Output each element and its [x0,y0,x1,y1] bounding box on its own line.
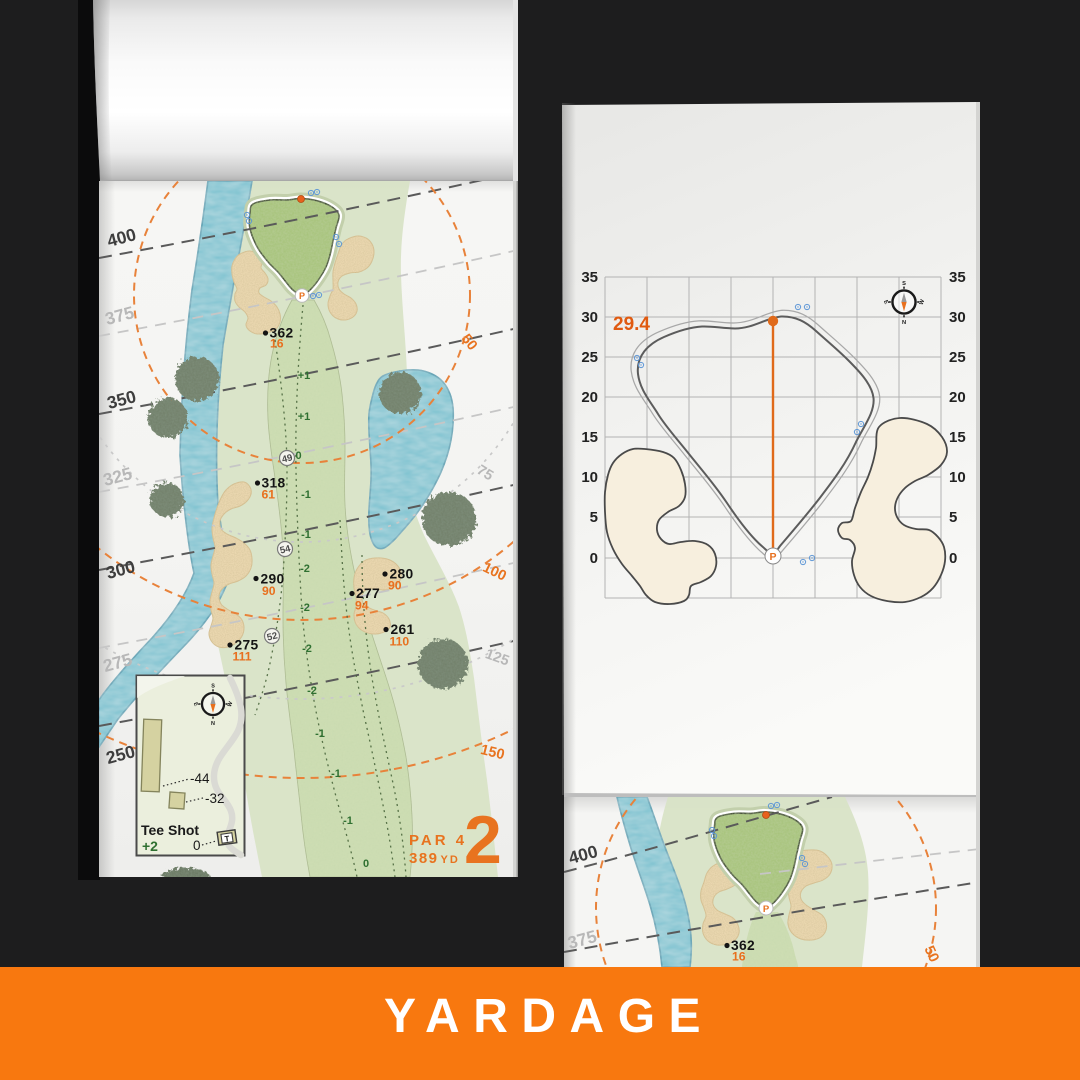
svg-text:0: 0 [949,550,957,567]
svg-text:30: 30 [949,309,966,326]
svg-text:30: 30 [581,309,598,326]
svg-text:-1: -1 [315,728,325,740]
svg-text:YARDAGE: YARDAGE [384,990,714,1043]
svg-text:-32: -32 [205,791,225,806]
svg-text:15: 15 [949,429,966,446]
svg-text:-1: -1 [343,815,353,827]
svg-text:10: 10 [949,469,966,486]
svg-text:0: 0 [193,838,201,853]
svg-text:25: 25 [581,349,598,366]
svg-text:-2: -2 [300,602,310,614]
svg-text:90: 90 [262,584,276,598]
svg-text:-1: -1 [301,529,311,541]
svg-text:16: 16 [270,337,284,351]
svg-text:-2: -2 [300,563,310,575]
svg-text:5: 5 [590,509,598,526]
svg-text:P: P [769,551,776,563]
svg-text:29.4: 29.4 [613,314,650,335]
svg-text:16: 16 [732,950,746,964]
svg-text:-2: -2 [307,685,317,697]
svg-text:35: 35 [949,269,966,286]
svg-text:20: 20 [949,389,966,406]
svg-text:20: 20 [581,389,598,406]
svg-text:Tee Shot: Tee Shot [141,822,199,838]
svg-text:-1: -1 [301,489,311,501]
svg-text:5: 5 [949,509,957,526]
svg-text:0: 0 [363,858,369,870]
svg-text:2: 2 [464,802,502,878]
svg-text:+1: +1 [298,370,311,382]
svg-text:-2: -2 [302,643,312,655]
svg-text:25: 25 [949,349,966,366]
svg-text:P: P [299,291,305,301]
svg-text:90: 90 [388,579,402,593]
svg-text:15: 15 [581,429,598,446]
svg-text:+1: +1 [298,411,311,423]
svg-text:0: 0 [590,550,598,567]
svg-text:P: P [763,904,770,915]
svg-text:PAR 4: PAR 4 [409,832,467,849]
svg-text:+2: +2 [142,838,158,854]
svg-text:-44: -44 [190,771,210,786]
svg-text:0: 0 [295,450,301,462]
svg-text:110: 110 [390,635,410,649]
svg-text:35: 35 [581,269,598,286]
svg-text:61: 61 [262,488,276,502]
svg-text:111: 111 [233,650,252,664]
svg-text:10: 10 [581,469,598,486]
svg-text:94: 94 [355,599,369,613]
svg-text:-1: -1 [331,768,341,780]
